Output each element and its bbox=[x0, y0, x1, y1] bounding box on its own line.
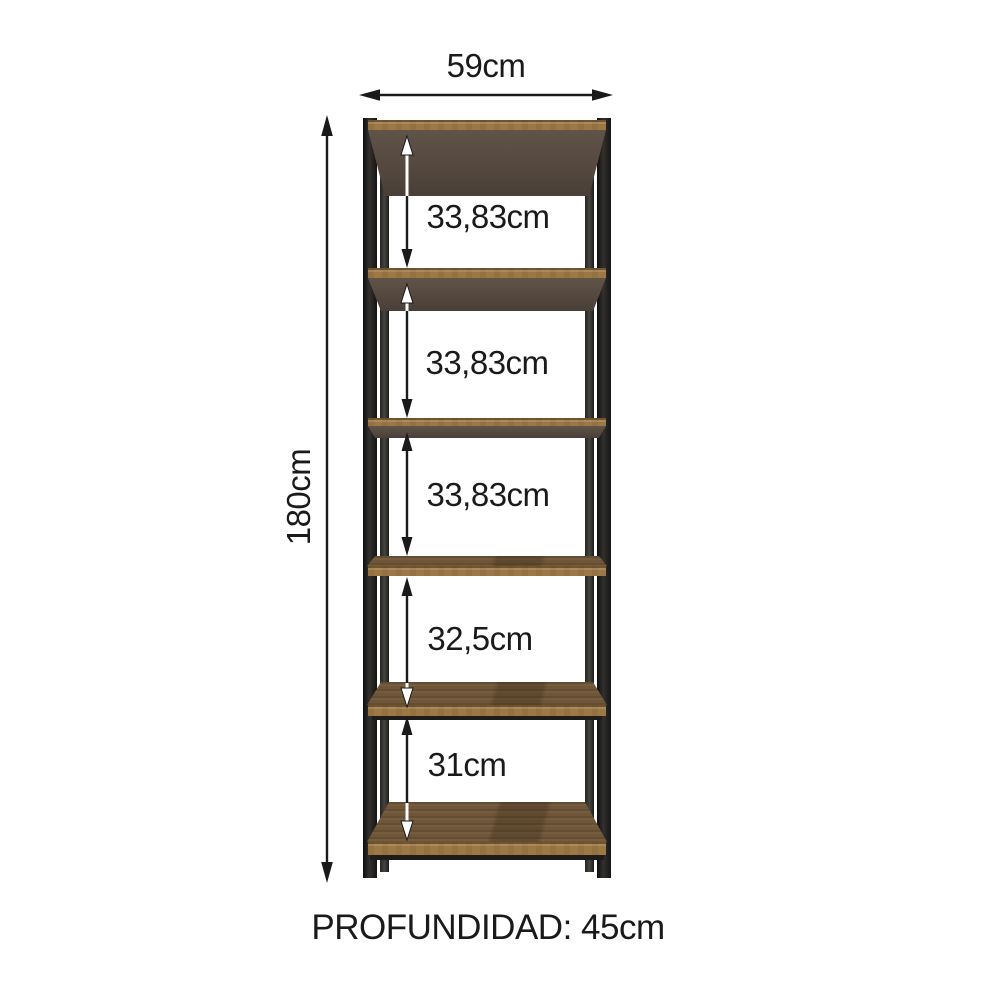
height-dimension-label: 180cm bbox=[280, 449, 318, 546]
shelf-6-front-edge bbox=[368, 842, 606, 855]
gap-3-label: 33,83cm bbox=[426, 476, 549, 514]
width-dimension-label: 59cm bbox=[447, 47, 526, 85]
gap-5-label: 31cm bbox=[428, 746, 507, 784]
gap-1-label: 33,83cm bbox=[426, 198, 549, 236]
frame-rear-post-left bbox=[380, 124, 389, 872]
gap-4-arrow bbox=[396, 575, 418, 709]
product-dimension-diagram: 59cm 180cm 33,83cm 33,83cm 33,83cm 32,5c… bbox=[0, 0, 1000, 1000]
shelf-6-frame-rail bbox=[370, 855, 604, 860]
gap-2-arrow bbox=[396, 282, 418, 420]
gap-5-arrow bbox=[396, 714, 418, 842]
gap-3-arrow bbox=[396, 430, 418, 558]
frame-front-post-right bbox=[597, 118, 611, 878]
frame-rear-post-right bbox=[585, 124, 594, 872]
depth-dimension-label: PROFUNDIDAD: 45cm bbox=[311, 908, 664, 948]
gap-2-label: 33,83cm bbox=[425, 344, 548, 382]
gap-4-label: 32,5cm bbox=[427, 620, 532, 658]
height-dimension-arrow bbox=[318, 114, 336, 884]
frame-front-post-left bbox=[363, 118, 377, 878]
width-dimension-arrow bbox=[358, 86, 614, 104]
gap-1-arrow bbox=[396, 134, 418, 270]
shelf-1-front-edge bbox=[368, 120, 606, 130]
